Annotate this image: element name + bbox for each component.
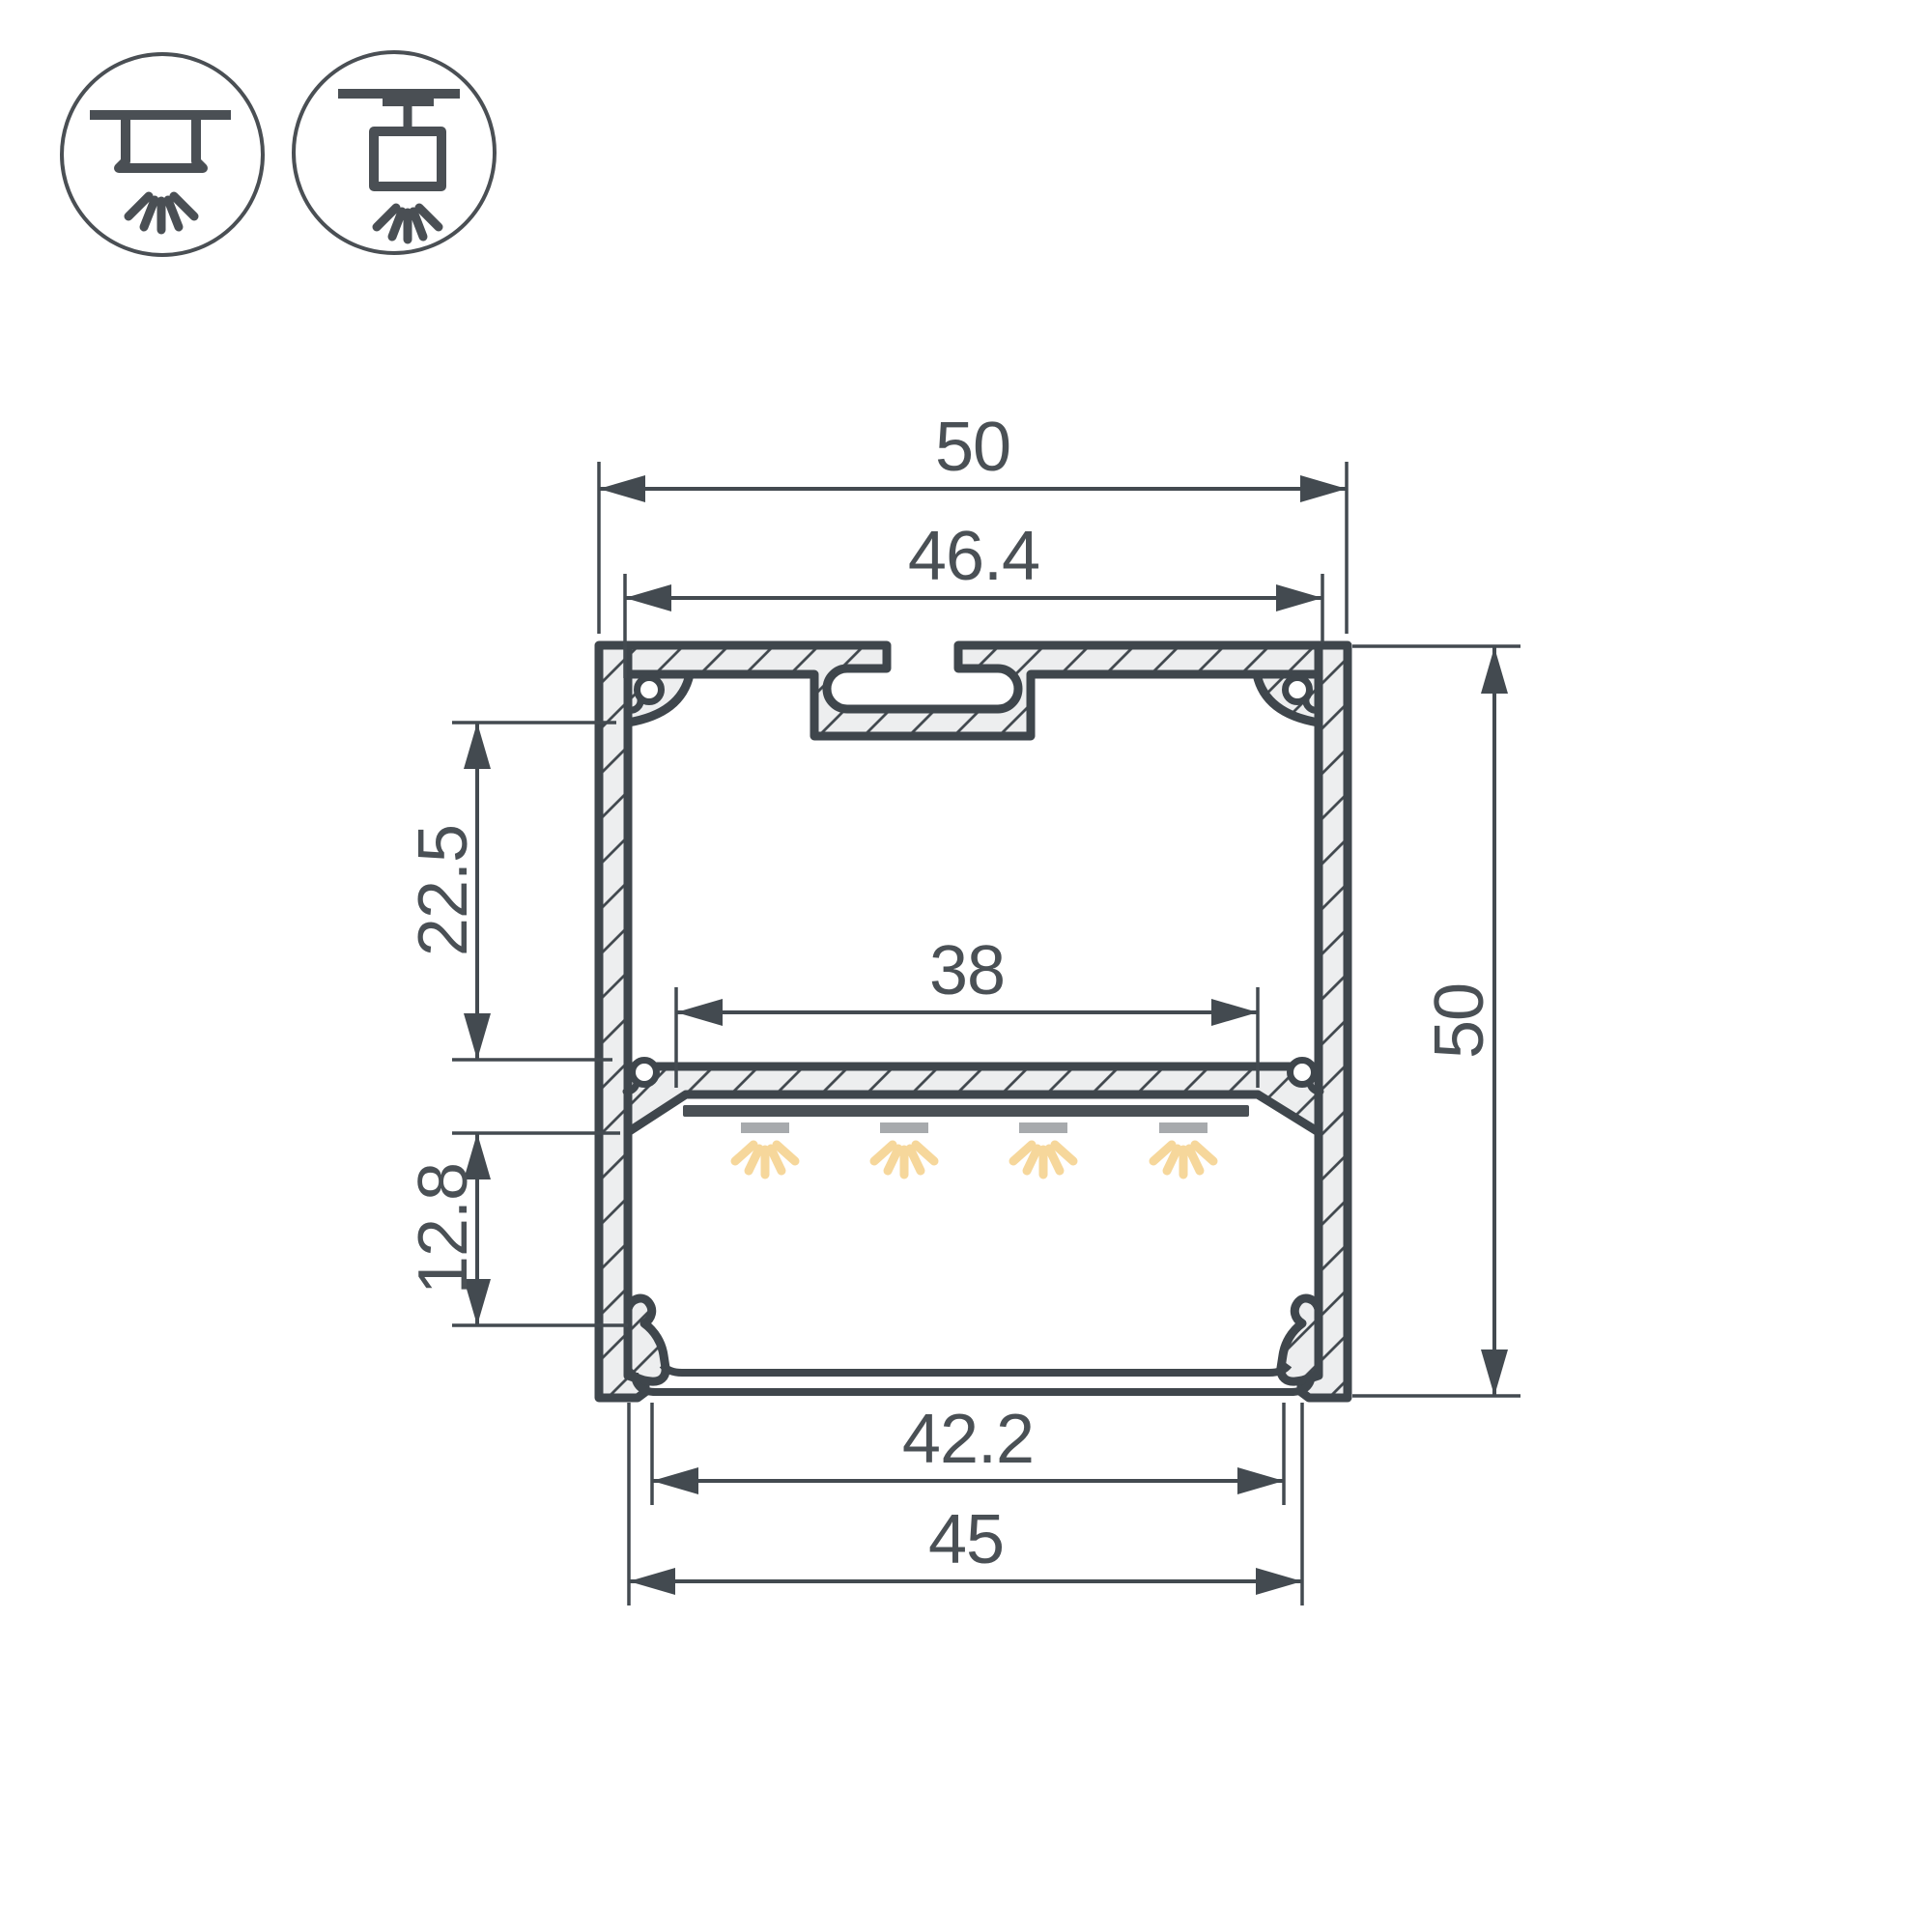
right-wall <box>1301 645 1348 1398</box>
led-light-rays <box>735 1145 1213 1175</box>
mount-clamp <box>383 92 434 106</box>
dimension-label: 22.5 <box>405 825 482 956</box>
dimension-label: 50 <box>935 409 1010 486</box>
dimension-overall-height: 50 <box>1352 646 1520 1396</box>
dimension-lower-section-height: 12.8 <box>405 1133 628 1325</box>
dimension-label: 50 <box>1421 983 1498 1059</box>
bottom-hook-left <box>628 1298 666 1381</box>
profile-box <box>374 131 441 186</box>
led-emitter <box>741 1122 789 1133</box>
dimension-diffuser-width: 42.2 <box>652 1401 1284 1505</box>
light-rays <box>377 208 439 240</box>
light-rays <box>128 196 194 230</box>
surface-mount-icon <box>62 54 263 255</box>
technical-drawing-page: 50 46.4 38 22.5 12.8 <box>0 0 1932 1932</box>
dimension-upper-section-height: 22.5 <box>405 723 616 1060</box>
led-modules <box>741 1122 1207 1133</box>
dimension-label: 12.8 <box>405 1163 482 1294</box>
led-emitter <box>880 1122 928 1133</box>
suspended-mount-icon <box>294 52 495 253</box>
diffuser-plate <box>635 1365 1312 1392</box>
led-emitter <box>1019 1122 1067 1133</box>
profile-drawing-canvas: 50 46.4 38 22.5 12.8 <box>0 0 1932 1932</box>
led-strip-pcb <box>683 1105 1249 1117</box>
led-emitter <box>1159 1122 1207 1133</box>
top-wall-mounting-channel <box>628 645 1319 736</box>
left-wall <box>599 645 645 1398</box>
dimension-label: 46.4 <box>908 518 1039 595</box>
dimension-label: 45 <box>928 1501 1004 1578</box>
dimension-label: 38 <box>929 932 1005 1009</box>
dimension-label: 42.2 <box>902 1401 1034 1478</box>
profile-box <box>119 115 203 168</box>
middle-led-shelf <box>628 1066 1319 1132</box>
